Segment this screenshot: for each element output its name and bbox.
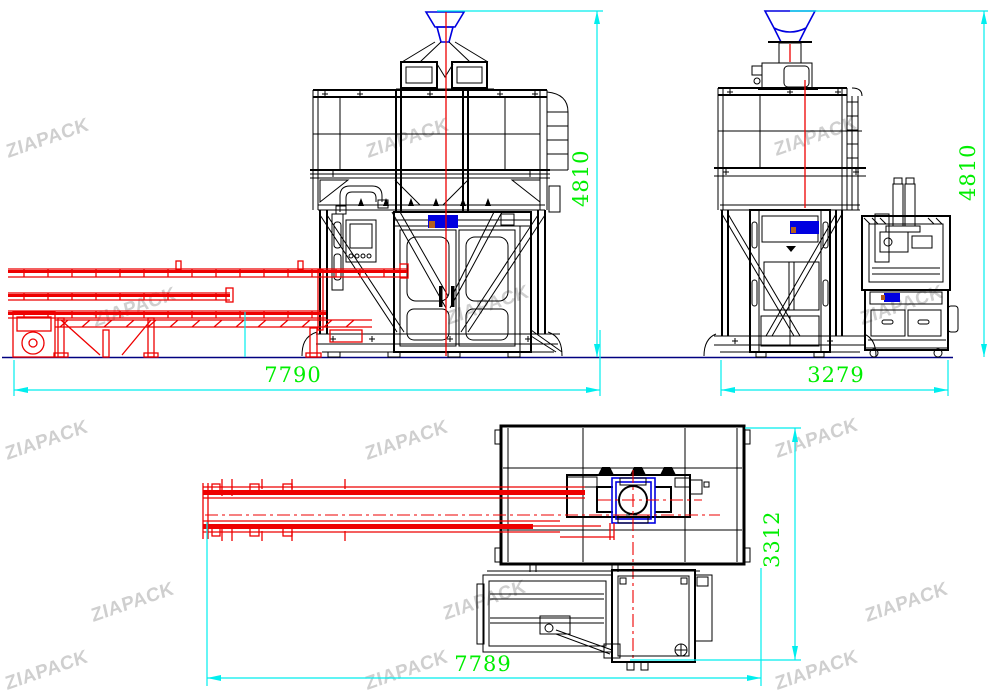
weigher-left-inner	[406, 67, 432, 83]
foot-tab	[627, 662, 634, 670]
brand-logo-plate	[884, 293, 900, 302]
indicator	[361, 254, 365, 258]
left-block	[567, 477, 597, 487]
infeed-conveyor-front	[8, 261, 408, 357]
front-platform	[310, 90, 568, 212]
mount-tabs	[598, 467, 676, 475]
front-cabinet	[394, 212, 562, 352]
drive-housing	[13, 312, 55, 357]
junction-box	[697, 577, 708, 586]
brand-logo-mark	[429, 221, 435, 228]
plan-view	[203, 426, 750, 670]
conveyor-drive-unit	[13, 312, 55, 357]
mechanism-wheel	[884, 238, 892, 246]
rail-mid	[8, 294, 230, 297]
arrow-down	[981, 344, 987, 357]
front-feed-funnel	[426, 12, 464, 42]
arrow-down	[792, 646, 798, 660]
main-legs	[722, 210, 842, 336]
watermark: ZIAPACK	[772, 112, 859, 161]
skid-rails	[316, 334, 560, 352]
feeder-drive	[752, 63, 818, 89]
support-columns	[396, 91, 468, 212]
watermark: ZIAPACK	[89, 578, 176, 627]
takeup-bracket	[330, 330, 362, 342]
arrow-right	[934, 387, 948, 393]
leg	[103, 330, 109, 357]
door-window	[407, 237, 449, 301]
watermark: ZIAPACK	[363, 646, 450, 695]
bolt	[620, 578, 626, 584]
weigher-boxes	[396, 62, 494, 89]
motor-shaft	[545, 624, 553, 632]
drawer	[908, 310, 941, 336]
arrow-right	[747, 675, 761, 681]
indicator	[367, 254, 371, 258]
door-handle	[439, 286, 443, 307]
weigher-right-inner	[457, 67, 482, 83]
rail-top	[8, 270, 407, 273]
funnel-bowl	[765, 11, 815, 42]
leg-foot	[144, 353, 158, 357]
window-panel	[794, 262, 819, 310]
funnel-bowl-curve	[774, 28, 806, 32]
leg-foot	[54, 353, 68, 357]
watermark: ZIAPACK	[773, 646, 860, 695]
channel-slot	[334, 254, 341, 280]
cabinet-body	[394, 212, 531, 352]
brand-logo-mark	[881, 295, 885, 300]
cylinder	[905, 184, 915, 226]
railing-posts	[313, 90, 547, 210]
watermark: ZIAPACK	[773, 414, 860, 463]
cylinder-base	[886, 226, 920, 232]
drive-pulley	[22, 332, 44, 354]
drive-top	[17, 317, 51, 331]
drawing-canvas: ZIAPACK ZIAPACK ZIAPACK ZIAPACK ZIAPACK …	[0, 0, 988, 695]
transition-cone	[402, 42, 488, 62]
door-window	[407, 309, 449, 340]
funnel-bowl	[426, 12, 464, 27]
leg-foot	[306, 353, 321, 357]
indicator	[355, 254, 359, 258]
post-slot	[823, 280, 828, 306]
post-slot	[752, 222, 757, 248]
engineering-drawing: ZIAPACK ZIAPACK ZIAPACK ZIAPACK ZIAPACK …	[0, 0, 988, 695]
watermark: ZIAPACK	[863, 578, 950, 627]
cylinder-cap	[894, 178, 902, 184]
bolt	[681, 578, 687, 584]
drawer-handle	[918, 320, 929, 324]
dim-text-front-height: 4810	[569, 150, 593, 207]
funnel-spout	[437, 27, 453, 42]
side-centerline	[790, 44, 805, 208]
arrow-left	[14, 387, 28, 393]
weigher-chute	[396, 64, 494, 89]
bag-closing-unit	[862, 178, 958, 357]
side-main-column	[750, 210, 830, 357]
watermark: ZIAPACK	[3, 646, 90, 695]
dimension-plan-depth: 3312	[630, 428, 801, 660]
duct	[549, 186, 560, 212]
drive-shaft	[29, 339, 37, 347]
post-slot	[752, 280, 757, 306]
cylinder-cap	[906, 178, 914, 184]
machine-base-inner	[618, 576, 689, 656]
watermark: ZIAPACK	[363, 416, 450, 465]
watermark: ZIAPACK	[91, 283, 178, 332]
cylinder	[893, 184, 903, 226]
dim-text-side-height: 4810	[956, 144, 980, 201]
gearbox	[752, 66, 762, 75]
front-elevation-view	[302, 12, 568, 357]
cross-braces	[320, 215, 545, 332]
foot-tab	[641, 662, 648, 670]
side-feed-funnel	[765, 11, 815, 42]
center-marker	[786, 246, 796, 252]
attachment	[675, 478, 690, 487]
side-bracket	[948, 306, 958, 332]
rail-low	[8, 312, 326, 315]
dimension-side-width: 3279	[721, 360, 948, 396]
watermark: ZIAPACK	[3, 416, 90, 465]
watermark: ZIAPACK	[4, 114, 91, 163]
column-post	[750, 210, 759, 352]
door-left	[400, 230, 456, 346]
arrow-right	[586, 387, 600, 393]
rail-top-plan	[203, 490, 585, 495]
attachment	[690, 480, 702, 494]
dim-text-side-width: 3279	[807, 363, 864, 387]
foot-pad	[328, 352, 340, 357]
door-handle	[451, 286, 455, 307]
arrow-down	[594, 344, 600, 357]
arrow-left	[721, 387, 735, 393]
arrow-up	[594, 11, 600, 24]
dim-text-plan-length: 7789	[454, 652, 511, 676]
brand-logo-mark	[791, 227, 796, 233]
access-ladder	[847, 88, 862, 210]
cross-braces	[722, 214, 842, 336]
shaft-end	[754, 78, 760, 84]
watermark: ZIAPACK	[444, 281, 531, 330]
stand-base	[866, 340, 948, 348]
motor-plan	[540, 616, 570, 634]
arrow-up	[981, 11, 987, 24]
control-box-panel	[350, 224, 372, 248]
side-panel	[695, 575, 712, 641]
side-skirt	[531, 330, 562, 352]
arrow-left	[207, 675, 221, 681]
access-ladder	[547, 92, 568, 170]
indicator	[349, 254, 353, 258]
dim-text-plan-depth: 3312	[760, 511, 784, 568]
watermark: ZIAPACK	[364, 114, 451, 163]
bolt	[704, 482, 709, 487]
dim-text-front-width: 7790	[264, 363, 321, 387]
mechanism-block	[912, 236, 932, 248]
